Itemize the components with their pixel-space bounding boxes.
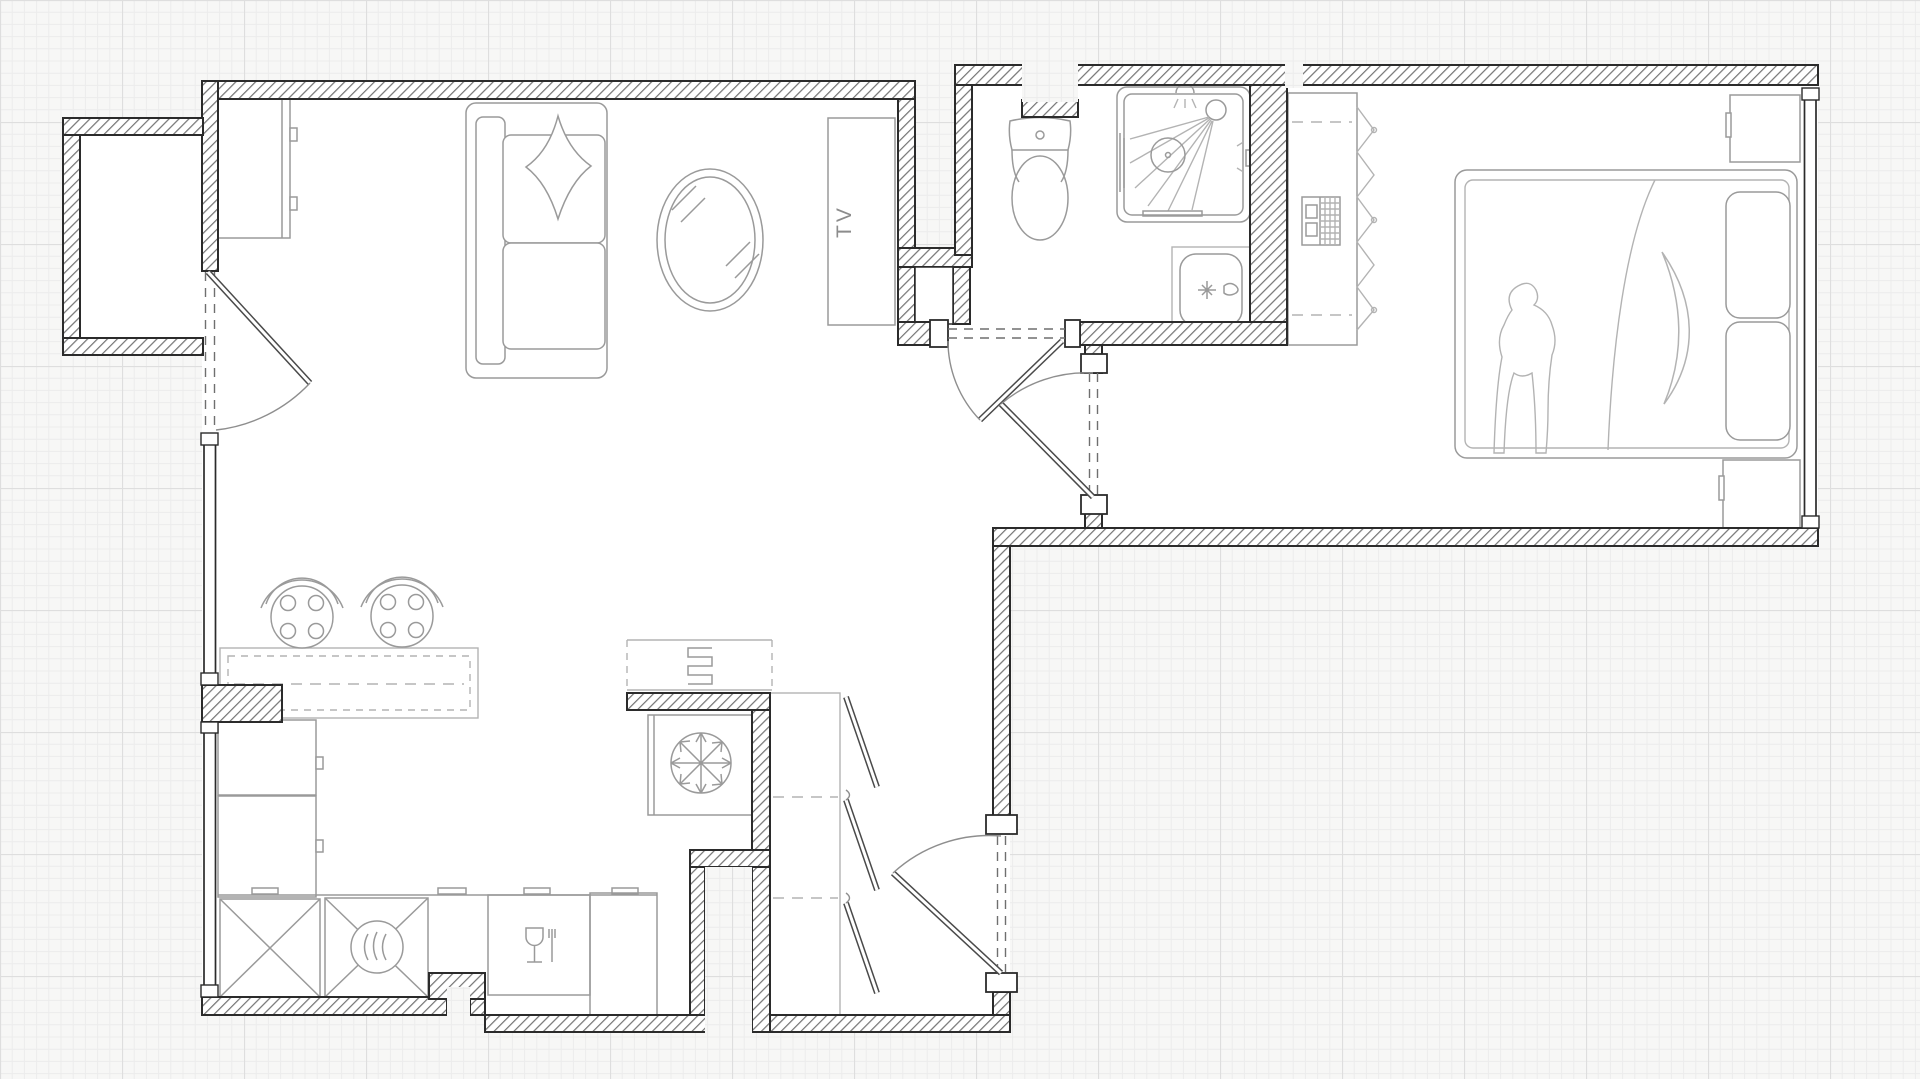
bathroom-sink — [1172, 247, 1250, 332]
cabinet-handle-icon — [290, 197, 297, 210]
wardrobe-cabinet — [218, 99, 297, 238]
cabinet-handle-icon — [316, 757, 323, 769]
wall-hall-right-lower — [993, 992, 1010, 1017]
tv-label: TV — [833, 205, 856, 238]
wall-top-living — [202, 81, 915, 99]
wall-bedroom-bottom — [993, 528, 1818, 546]
notch-above-toilet — [1022, 64, 1078, 102]
wall-shaft-stub-a — [898, 267, 915, 324]
wall-living-right — [898, 99, 915, 249]
counter-handle-icon — [524, 888, 550, 894]
snowflake-icon — [671, 733, 731, 793]
wall-window-stub — [202, 685, 282, 722]
counter-handle-icon — [252, 888, 278, 894]
wall-hall-right-upper — [993, 546, 1010, 817]
wall-bottom-left-a — [202, 997, 447, 1015]
wall-toilet-niche — [1022, 100, 1078, 117]
cabinet-handle-icon — [290, 128, 297, 141]
wall-slot-left — [690, 867, 705, 1015]
pillow — [1726, 192, 1790, 318]
wall-bath-left — [955, 85, 972, 255]
counter-handle-icon — [438, 888, 466, 894]
pillow — [1726, 322, 1790, 440]
wall-balcony-bottom — [63, 338, 203, 355]
wall-radiator-band — [627, 693, 770, 710]
notch-bottom-slot — [705, 867, 752, 1033]
cabinet-handle-icon — [316, 840, 323, 852]
shaft-niche — [915, 267, 953, 324]
wall-fridge-niche-right — [752, 710, 770, 850]
ac-panel — [1302, 197, 1340, 245]
wall-slot-top — [690, 850, 770, 867]
floor-plan-svg: TV — [0, 0, 1920, 1079]
wall-bath-bottom-left — [898, 322, 931, 345]
wall-left-living — [202, 81, 218, 271]
wall-balcony-left — [63, 118, 80, 355]
notch-bottom-small — [447, 987, 470, 1016]
toilet — [1009, 118, 1070, 241]
floor-plan-canvas: TV — [0, 0, 1920, 1079]
wall-bath-bottom-right — [1080, 322, 1287, 345]
wall-slot-right — [752, 867, 770, 1032]
wall-shaft-stub-b — [953, 267, 970, 324]
sofa — [466, 103, 607, 378]
wall-top-bath-bedroom — [955, 65, 1818, 85]
nightstand-handle-icon — [1726, 113, 1731, 137]
wall-balcony-top — [63, 118, 203, 135]
notch-bed-top-left — [1285, 64, 1303, 88]
wall-bath-bedroom-divider — [1250, 85, 1287, 345]
nightstand-handle-icon — [1719, 476, 1724, 500]
